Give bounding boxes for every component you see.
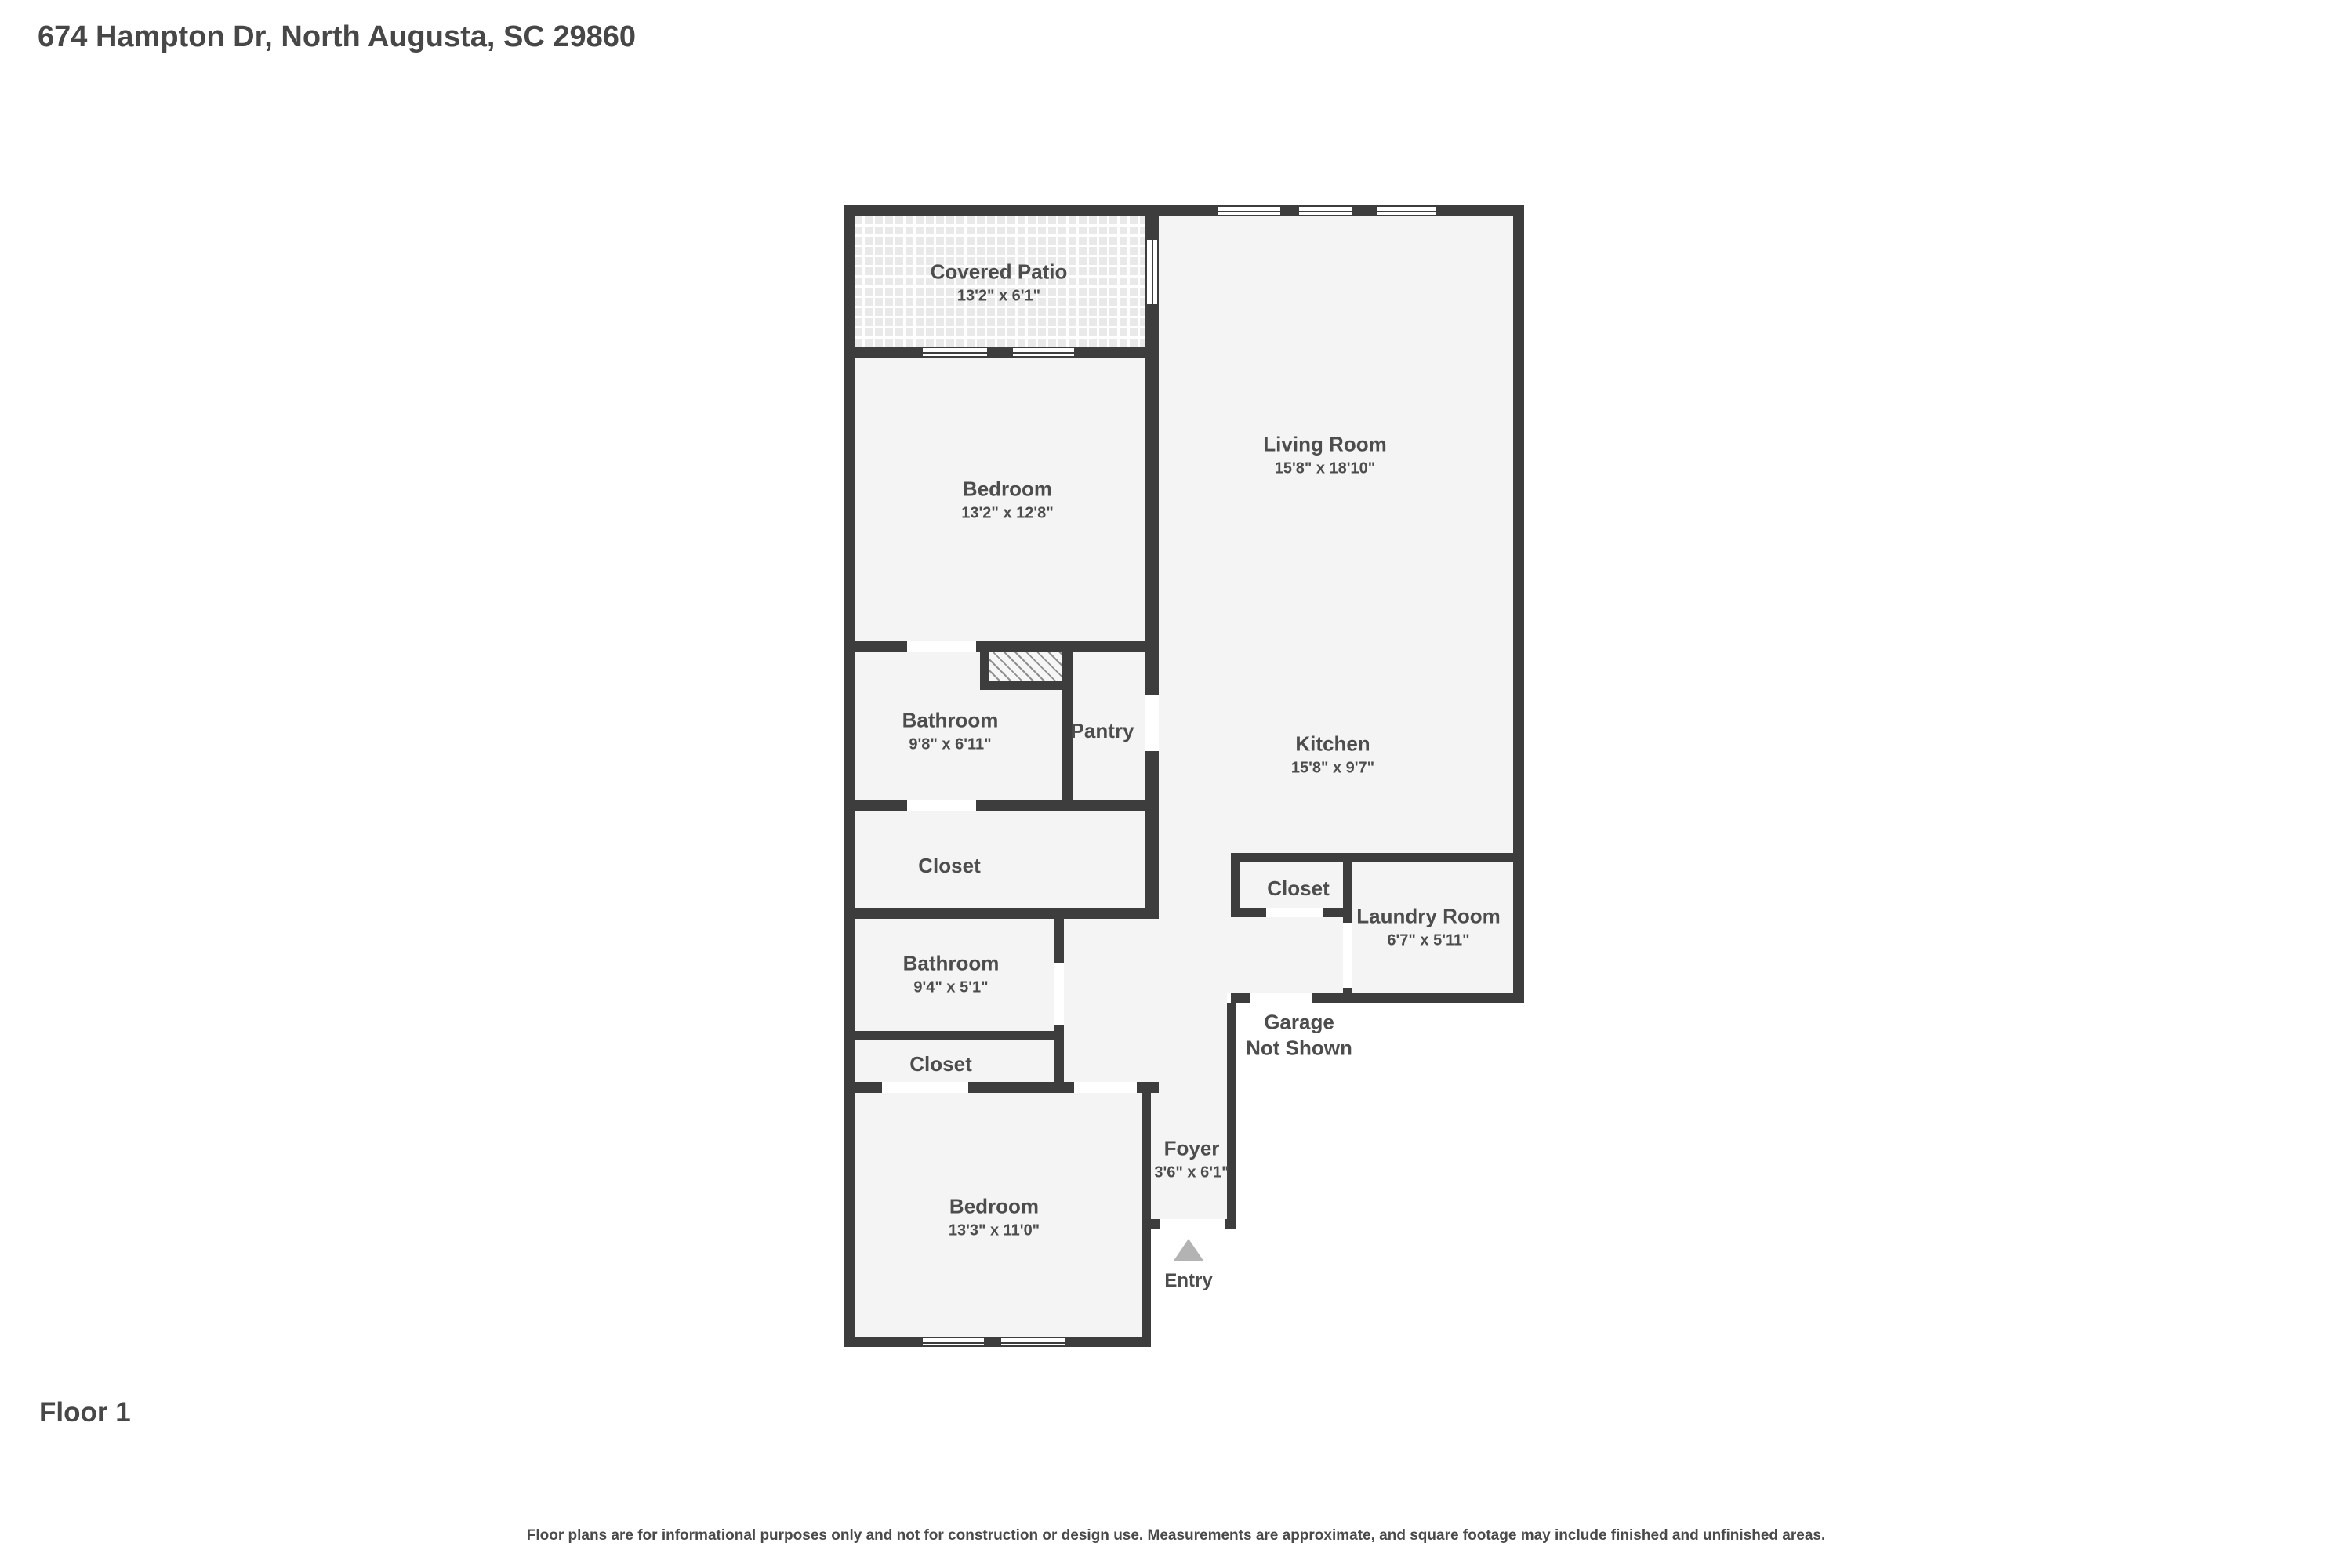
room-dims: 9'8" x 6'11"	[902, 735, 999, 754]
wall-outer-left	[844, 205, 855, 1347]
pantry-door-opening	[1145, 695, 1159, 751]
entry-door-opening	[1160, 1219, 1225, 1229]
wall-segment	[980, 652, 989, 681]
window	[1298, 205, 1354, 216]
wall-segment	[1231, 853, 1524, 862]
room-name: Laundry Room	[1356, 903, 1500, 929]
door-opening	[1054, 963, 1064, 1025]
wall-segment	[844, 1031, 1064, 1040]
room-name: Covered Patio	[931, 259, 1068, 285]
garage-note-line1: Garage	[1246, 1010, 1352, 1036]
window	[1217, 205, 1282, 216]
floor-label: Floor 1	[39, 1397, 131, 1428]
room-name: Living Room	[1263, 431, 1386, 457]
wall-segment	[1142, 1083, 1151, 1347]
window	[921, 1337, 985, 1347]
hallway-floor	[1227, 917, 1343, 993]
wall-segment	[844, 908, 1159, 919]
window	[1000, 1337, 1066, 1347]
shower-hatch-area	[989, 652, 1062, 681]
room-label-closet-hall: Closet	[918, 853, 980, 879]
room-label-laundry-room: Laundry Room 6'7" x 5'11"	[1356, 903, 1500, 950]
window	[1376, 205, 1437, 216]
room-dims: 15'8" x 9'7"	[1291, 758, 1374, 778]
door-opening	[1074, 1082, 1137, 1093]
wall-foyer-right	[1227, 1003, 1236, 1229]
window	[921, 347, 989, 358]
room-label-bathroom-upper: Bathroom 9'8" x 6'11"	[902, 707, 999, 754]
closet-hall-floor	[855, 811, 1145, 908]
room-label-covered-patio: Covered Patio 13'2" x 6'1"	[931, 259, 1068, 306]
room-label-bedroom-lower: Bedroom 13'3" x 11'0"	[949, 1193, 1040, 1240]
room-label-bathroom-lower: Bathroom 9'4" x 5'1"	[903, 950, 1000, 997]
wall-segment	[844, 641, 1159, 652]
entry-label: Entry	[1164, 1269, 1212, 1293]
room-label-closet-laundry: Closet	[1267, 876, 1329, 902]
door-opening	[907, 800, 976, 811]
entry-arrow-icon	[1174, 1239, 1203, 1261]
floor-plan: Covered Patio 13'2" x 6'1" Living Room 1…	[0, 0, 2352, 1568]
hallway-floor	[1064, 917, 1227, 1083]
room-name: Foyer	[1154, 1135, 1229, 1161]
wall-segment	[1145, 205, 1159, 238]
room-label-foyer: Foyer 3'6" x 6'1"	[1154, 1135, 1229, 1182]
room-dims: 6'7" x 5'11"	[1356, 931, 1500, 950]
garage-note-line2: Not Shown	[1246, 1035, 1352, 1061]
room-dims: 13'2" x 12'8"	[961, 503, 1053, 523]
room-dims: 9'4" x 5'1"	[903, 978, 1000, 997]
room-dims: 13'3" x 11'0"	[949, 1221, 1040, 1240]
wall-segment	[1145, 306, 1159, 695]
room-name: Bathroom	[903, 950, 1000, 976]
room-dims: 3'6" x 6'1"	[1154, 1163, 1229, 1182]
door-opening	[882, 1082, 968, 1093]
wall-segment	[980, 681, 1073, 690]
wall-patio-bottom	[844, 347, 1159, 358]
room-name: Bedroom	[949, 1193, 1040, 1219]
room-label-living-room: Living Room 15'8" x 18'10"	[1263, 431, 1386, 478]
hallway-floor	[1151, 855, 1231, 921]
wall-outer-right	[1513, 205, 1524, 1003]
wall-segment	[844, 800, 1159, 811]
room-name: Kitchen	[1291, 731, 1374, 757]
room-dims: 15'8" x 18'10"	[1263, 459, 1386, 478]
window	[1011, 347, 1076, 358]
garage-note: Garage Not Shown	[1246, 1010, 1352, 1061]
room-label-bedroom-upper: Bedroom 13'2" x 12'8"	[961, 476, 1053, 523]
room-name: Closet	[1267, 876, 1329, 902]
wall-segment	[844, 1337, 1151, 1347]
wall-segment	[1145, 751, 1159, 917]
room-name: Bathroom	[902, 707, 999, 733]
door-opening	[1266, 908, 1323, 917]
room-label-pantry: Pantry	[1071, 718, 1134, 744]
garage-door-opening	[1250, 993, 1312, 1003]
room-name: Pantry	[1071, 718, 1134, 744]
room-label-closet-lower: Closet	[909, 1051, 971, 1077]
room-name: Closet	[909, 1051, 971, 1077]
room-label-kitchen: Kitchen 15'8" x 9'7"	[1291, 731, 1374, 778]
patio-slider-window	[1145, 238, 1159, 306]
door-opening	[907, 641, 976, 652]
room-name: Bedroom	[961, 476, 1053, 502]
entry-text: Entry	[1164, 1269, 1212, 1293]
disclaimer-text: Floor plans are for informational purpos…	[0, 1527, 2352, 1544]
room-name: Closet	[918, 853, 980, 879]
room-dims: 13'2" x 6'1"	[931, 286, 1068, 306]
door-opening	[1343, 923, 1352, 988]
